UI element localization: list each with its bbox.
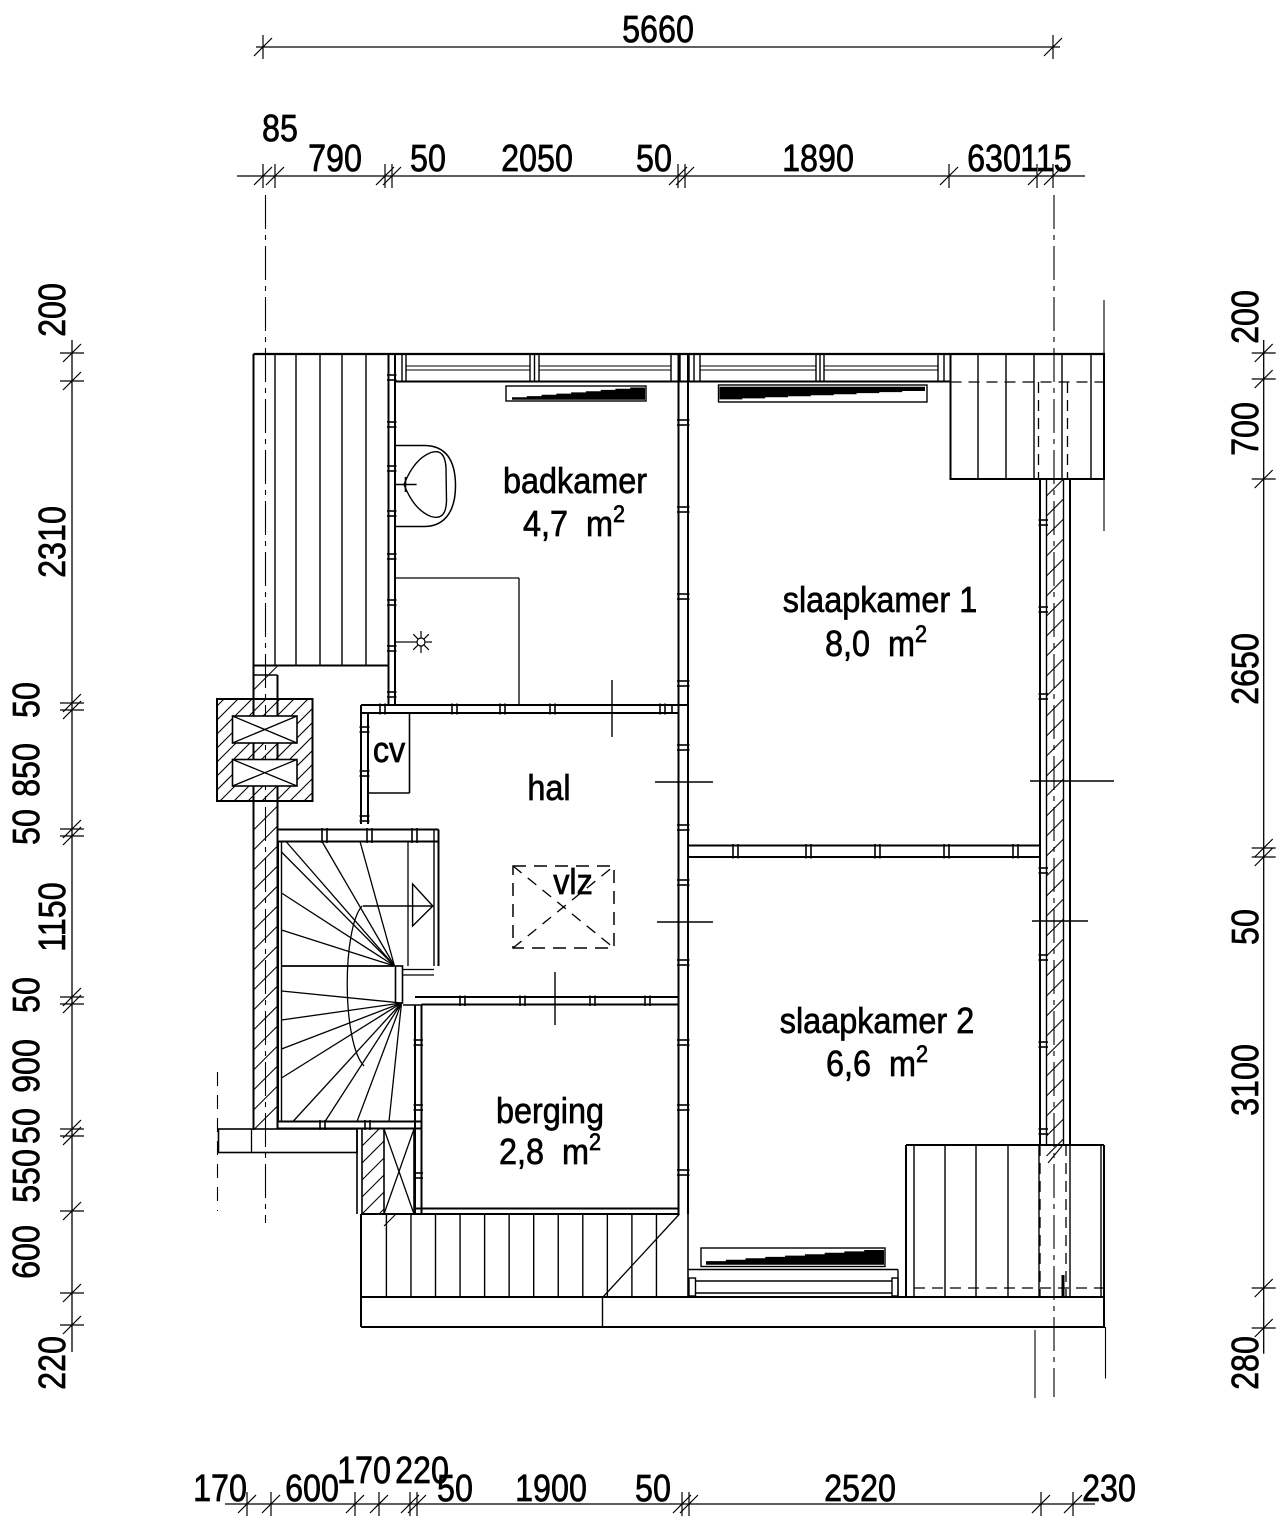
svg-text:50: 50 <box>410 138 446 180</box>
svg-text:700: 700 <box>1225 402 1267 456</box>
svg-text:50: 50 <box>636 138 672 180</box>
svg-text:2520: 2520 <box>824 1468 896 1510</box>
svg-text:8,0 m2: 8,0 m2 <box>825 620 927 664</box>
svg-text:230: 230 <box>1082 1468 1136 1510</box>
svg-text:slaapkamer 2: slaapkamer 2 <box>780 1001 974 1041</box>
svg-text:600: 600 <box>6 1225 48 1279</box>
svg-text:vlz: vlz <box>553 862 593 902</box>
svg-text:3100: 3100 <box>1225 1044 1267 1116</box>
svg-text:2050: 2050 <box>501 138 573 180</box>
svg-text:200: 200 <box>32 283 74 337</box>
svg-text:85: 85 <box>262 108 298 150</box>
svg-text:790: 790 <box>308 138 362 180</box>
svg-text:50: 50 <box>6 809 48 845</box>
svg-text:1900: 1900 <box>515 1468 587 1510</box>
svg-text:900: 900 <box>6 1039 48 1093</box>
svg-text:170: 170 <box>193 1468 247 1510</box>
svg-text:slaapkamer 1: slaapkamer 1 <box>783 580 977 620</box>
svg-text:220: 220 <box>32 1336 74 1390</box>
svg-text:600: 600 <box>285 1468 339 1510</box>
svg-text:50: 50 <box>6 977 48 1013</box>
svg-text:170: 170 <box>337 1450 391 1492</box>
svg-text:50: 50 <box>1225 909 1267 945</box>
svg-text:2310: 2310 <box>32 506 74 578</box>
svg-text:2650: 2650 <box>1225 633 1267 705</box>
svg-text:berging: berging <box>496 1091 604 1131</box>
svg-text:550: 550 <box>6 1149 48 1203</box>
svg-text:50: 50 <box>6 1108 48 1144</box>
svg-text:4,7 m2: 4,7 m2 <box>523 500 625 544</box>
svg-text:cv: cv <box>373 730 405 770</box>
svg-text:badkamer: badkamer <box>503 461 647 501</box>
svg-text:630: 630 <box>967 138 1021 180</box>
svg-text:200: 200 <box>1225 290 1267 344</box>
svg-text:220: 220 <box>395 1450 449 1492</box>
svg-text:1150: 1150 <box>32 882 74 951</box>
svg-text:280: 280 <box>1225 1336 1267 1390</box>
svg-text:50: 50 <box>6 682 48 718</box>
svg-text:6,6 m2: 6,6 m2 <box>826 1040 928 1084</box>
svg-text:5660: 5660 <box>622 9 694 51</box>
svg-text:50: 50 <box>635 1468 671 1510</box>
svg-text:115: 115 <box>1020 138 1071 180</box>
svg-text:hal: hal <box>527 768 570 808</box>
svg-text:850: 850 <box>6 743 48 797</box>
svg-text:1890: 1890 <box>782 138 854 180</box>
svg-text:2,8 m2: 2,8 m2 <box>499 1128 601 1172</box>
